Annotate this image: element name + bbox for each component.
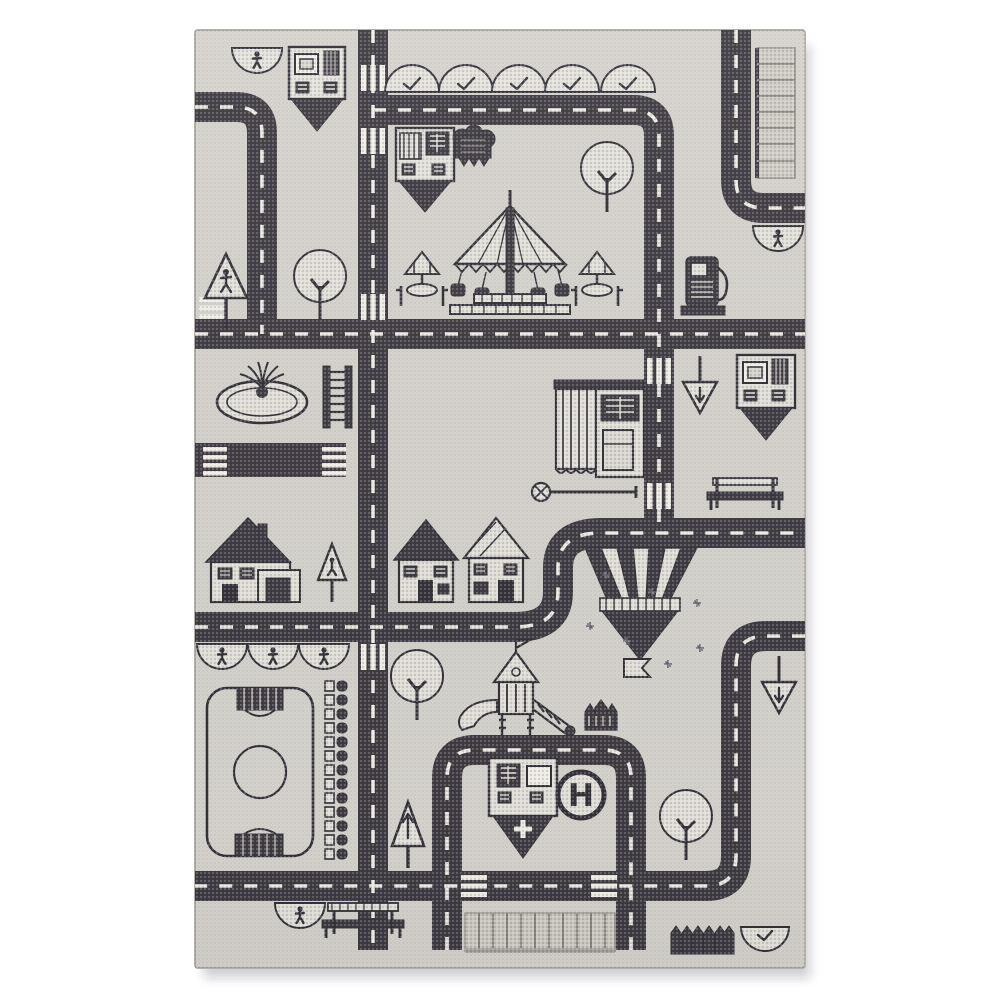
- play-rug-photo: H: [0, 0, 1000, 1000]
- product-photo: H: [0, 0, 1000, 1000]
